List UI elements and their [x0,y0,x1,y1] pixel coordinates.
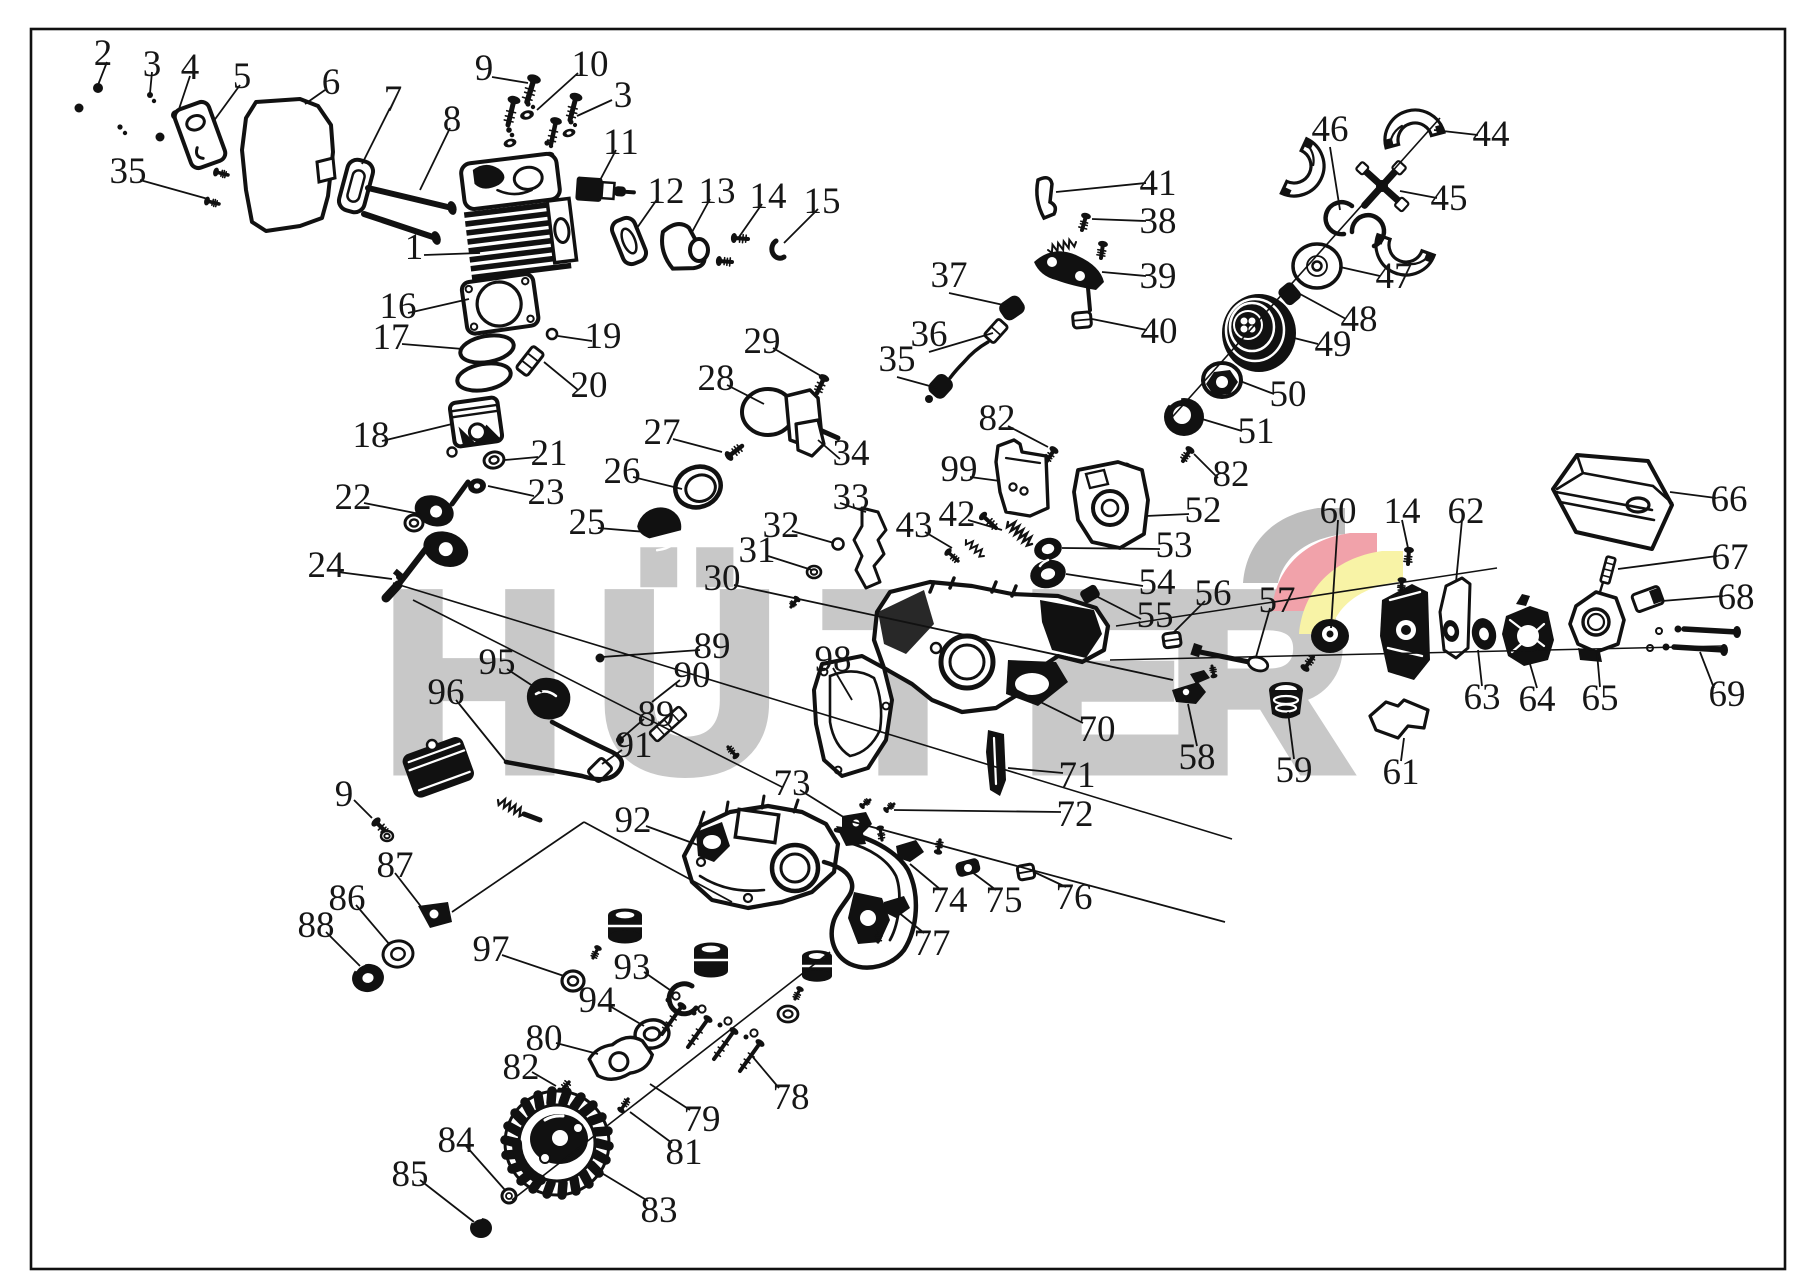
svg-text:51: 51 [1238,411,1275,452]
svg-text:26: 26 [604,451,641,492]
svg-text:61: 61 [1383,752,1420,793]
svg-text:97: 97 [473,929,510,970]
svg-text:18: 18 [353,415,390,456]
svg-text:45: 45 [1431,178,1468,219]
svg-text:8: 8 [443,99,462,140]
svg-text:13: 13 [699,171,736,212]
svg-text:23: 23 [528,472,565,513]
svg-text:15: 15 [804,181,841,222]
svg-text:35: 35 [110,151,147,192]
svg-text:36: 36 [911,314,948,355]
svg-text:2: 2 [94,33,113,74]
svg-text:62: 62 [1448,491,1485,532]
svg-text:28: 28 [698,358,735,399]
svg-text:3: 3 [614,75,633,116]
svg-text:75: 75 [986,880,1023,921]
svg-text:24: 24 [308,545,345,586]
svg-text:46: 46 [1312,109,1349,150]
svg-text:90: 90 [674,655,711,696]
svg-text:82: 82 [979,398,1016,439]
svg-text:14: 14 [1384,491,1421,532]
svg-text:77: 77 [914,923,951,964]
svg-text:19: 19 [585,316,622,357]
svg-text:44: 44 [1473,114,1510,155]
svg-text:9: 9 [475,48,494,89]
svg-text:3: 3 [143,44,162,85]
svg-text:17: 17 [373,317,410,358]
svg-text:49: 49 [1315,324,1352,365]
svg-text:65: 65 [1582,678,1619,719]
svg-text:53: 53 [1156,525,1193,566]
svg-text:66: 66 [1711,479,1748,520]
svg-text:27: 27 [644,412,681,453]
svg-text:47: 47 [1376,256,1413,297]
svg-text:60: 60 [1320,491,1357,532]
svg-text:82: 82 [503,1047,540,1088]
svg-text:25: 25 [569,502,606,543]
svg-text:31: 31 [739,530,776,571]
svg-text:58: 58 [1179,737,1216,778]
svg-text:69: 69 [1709,674,1746,715]
svg-text:85: 85 [392,1154,429,1195]
svg-text:5: 5 [233,56,252,97]
svg-text:40: 40 [1141,311,1178,352]
svg-text:14: 14 [750,176,787,217]
svg-text:10: 10 [572,44,609,85]
svg-text:9: 9 [335,774,354,815]
svg-text:79: 79 [684,1099,721,1140]
svg-text:95: 95 [479,642,516,683]
svg-text:78: 78 [773,1077,810,1118]
svg-text:50: 50 [1270,374,1307,415]
svg-text:39: 39 [1140,256,1177,297]
svg-text:34: 34 [833,433,870,474]
svg-text:59: 59 [1276,750,1313,791]
svg-text:4: 4 [181,47,200,88]
svg-text:20: 20 [571,365,608,406]
svg-text:55: 55 [1137,595,1174,636]
svg-text:91: 91 [616,725,653,766]
svg-text:67: 67 [1712,537,1749,578]
svg-text:21: 21 [531,433,568,474]
svg-text:82: 82 [1213,454,1250,495]
svg-text:30: 30 [704,558,741,599]
svg-text:88: 88 [298,905,335,946]
svg-text:33: 33 [833,477,870,518]
svg-text:96: 96 [428,672,465,713]
svg-text:93: 93 [614,947,651,988]
svg-text:64: 64 [1519,679,1556,720]
svg-text:6: 6 [322,62,341,103]
svg-text:99: 99 [941,449,978,490]
svg-text:22: 22 [335,477,372,518]
svg-text:72: 72 [1057,794,1094,835]
svg-text:56: 56 [1195,573,1232,614]
svg-text:41: 41 [1140,163,1177,204]
svg-text:87: 87 [377,845,414,886]
svg-text:11: 11 [603,122,639,163]
svg-text:1: 1 [405,227,424,268]
svg-text:94: 94 [579,980,616,1021]
svg-text:92: 92 [615,800,652,841]
svg-text:43: 43 [896,505,933,546]
svg-text:42: 42 [939,494,976,535]
svg-text:74: 74 [931,880,968,921]
svg-text:76: 76 [1056,877,1093,918]
svg-text:63: 63 [1464,677,1501,718]
svg-text:12: 12 [648,171,685,212]
svg-text:71: 71 [1059,755,1096,796]
svg-text:37: 37 [931,255,968,296]
svg-text:38: 38 [1140,201,1177,242]
svg-text:70: 70 [1079,709,1116,750]
svg-text:7: 7 [384,79,403,120]
svg-text:29: 29 [744,321,781,362]
svg-text:68: 68 [1718,577,1755,618]
svg-text:98: 98 [815,639,852,680]
svg-text:84: 84 [438,1120,475,1161]
svg-text:83: 83 [641,1190,678,1231]
svg-text:73: 73 [774,763,811,804]
svg-text:57: 57 [1259,580,1296,621]
